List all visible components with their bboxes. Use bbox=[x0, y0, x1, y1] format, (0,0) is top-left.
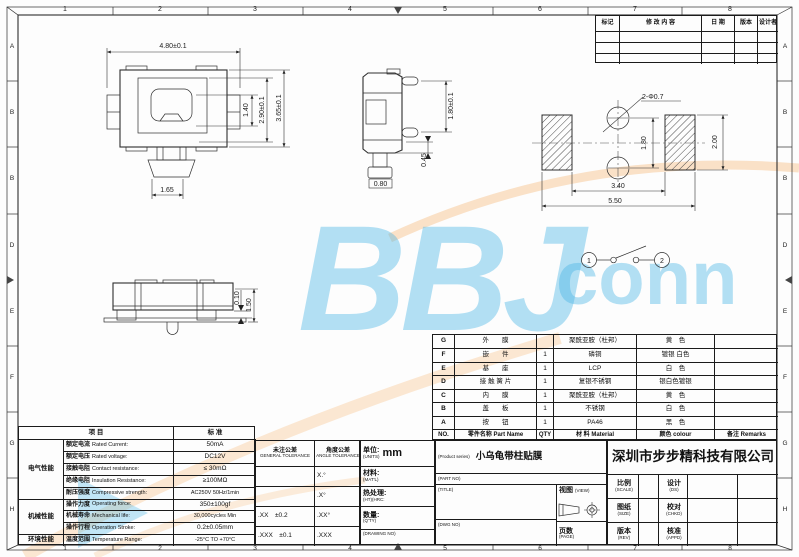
zone-label: 4 bbox=[343, 6, 357, 13]
info-material: 材料:(MAT'L) bbox=[361, 466, 436, 486]
parts-cell-qty: 1 bbox=[536, 389, 553, 402]
spec-label: 耐压强度Compressive strength: bbox=[63, 487, 173, 499]
tolerance-angle-value: .X° bbox=[314, 486, 361, 506]
spec-label: 额定电压Rated voltage: bbox=[63, 451, 173, 463]
spec-value: ≥100MΩ bbox=[173, 475, 256, 487]
parts-cell-remarks bbox=[714, 389, 778, 402]
zone-label: B bbox=[779, 175, 791, 182]
centering-mark-right bbox=[785, 276, 792, 284]
pcb-pad-left bbox=[542, 115, 572, 170]
parts-cell-remarks bbox=[714, 402, 778, 416]
product-name: 小乌龟带柱贴膜 bbox=[476, 452, 543, 462]
revision-cell bbox=[757, 42, 778, 53]
revision-cell bbox=[701, 42, 734, 53]
spec-group-electrical: 电气性能 bbox=[19, 439, 63, 499]
zone-label: H bbox=[6, 506, 18, 513]
title-block-left: (Product series) 小乌龟带柱贴膜 (PART NO) (TITL… bbox=[435, 440, 607, 545]
spec-table: 项 目 标 准 电气性能 机械性能 环境性能 额定电流Rated Current… bbox=[18, 426, 255, 545]
zone-label: B bbox=[779, 109, 791, 116]
spec-label: 机械寿命Mechanical life: bbox=[63, 510, 173, 522]
dim-front-gap: 0.10 bbox=[234, 291, 241, 305]
parts-cell-colour: 银白色镀银 bbox=[636, 375, 714, 389]
title-block-right: 深圳市步步精科技有限公司 比例(SCALE) 设计(DS) 图纸(SIZE) 校… bbox=[607, 440, 777, 545]
company-name: 深圳市步步精科技有限公司 bbox=[608, 441, 778, 474]
parts-cell-material: 不锈钢 bbox=[553, 402, 636, 416]
spec-value: 50mA bbox=[173, 439, 256, 451]
circuit-terminal-1: 1 bbox=[587, 258, 591, 265]
dim-top-inner-height: 2.90±0.1 bbox=[259, 96, 266, 123]
info-units: 单位:(UNITS) mm bbox=[361, 441, 436, 466]
spec-label: 接触电阻Contact resistance: bbox=[63, 463, 173, 475]
spec-value: 0.2±0.05mm bbox=[173, 522, 256, 534]
parts-cell-remarks bbox=[714, 375, 778, 389]
info-block: 单位:(UNITS) mm 材料:(MAT'L) 热处理:(HT)(HRC: 数… bbox=[360, 440, 435, 545]
spec-group-environmental: 环境性能 bbox=[19, 534, 63, 546]
zone-label: B bbox=[6, 109, 18, 116]
parts-cell-material: 聚酰亚胺（杜邦） bbox=[553, 389, 636, 402]
zone-label: 8 bbox=[724, 545, 736, 552]
zone-label: D bbox=[779, 242, 791, 249]
dim-side-foot-width: 0.80 bbox=[374, 181, 388, 188]
info-heat-treatment: 热处理:(HT)(HRC: bbox=[361, 486, 436, 506]
parts-cell-remarks bbox=[714, 416, 778, 429]
revision-header-content: 修 改 内 容 bbox=[619, 16, 701, 31]
revision-cell bbox=[701, 53, 734, 64]
rev-label: 版本(REV) bbox=[608, 522, 638, 546]
dim-top-width: 4.80±0.1 bbox=[159, 43, 186, 50]
zone-label: B bbox=[6, 175, 18, 182]
spec-value: -25°C TO +70°C bbox=[173, 534, 256, 546]
centering-mark-left bbox=[7, 276, 14, 284]
parts-cell-name: 基 座 bbox=[454, 362, 536, 375]
spec-header-standard: 标 准 bbox=[173, 427, 256, 439]
dim-pcb-span-inner: 3.40 bbox=[611, 183, 625, 190]
parts-cell-material: 聚酰亚胺（杜邦） bbox=[553, 335, 636, 348]
check-value bbox=[687, 498, 737, 522]
parts-table: G 外 膜 聚酰亚胺（杜邦） 黄 色 F 嵌 件 1 磷铜 镀银 白色 E 基 … bbox=[432, 334, 777, 440]
zone-label: 3 bbox=[248, 6, 262, 13]
parts-cell-qty: 1 bbox=[536, 375, 553, 389]
spec-value: DC12V bbox=[173, 451, 256, 463]
parts-cell-no: G bbox=[433, 335, 454, 348]
tolerance-general-value: .XXX ±0.1 bbox=[256, 526, 314, 546]
parts-cell-name: 外 膜 bbox=[454, 335, 536, 348]
parts-cell-material: PA46 bbox=[553, 416, 636, 429]
revision-table: 标记 修 改 内 容 日 期 版本 设计者 bbox=[595, 15, 777, 63]
zone-label: F bbox=[779, 374, 791, 381]
zone-label: 7 bbox=[629, 545, 641, 552]
dim-side-pin-offset: 0.45 bbox=[421, 153, 428, 167]
rev-value bbox=[638, 522, 658, 546]
spec-header-item: 项 目 bbox=[19, 427, 173, 439]
scale-value bbox=[638, 474, 658, 498]
zone-label: A bbox=[6, 43, 18, 50]
revision-cell bbox=[757, 53, 778, 64]
zone-label: F bbox=[6, 374, 18, 381]
spec-group-mechanical: 机械性能 bbox=[19, 499, 63, 534]
product-series-cell: (Product series) 小乌龟带柱贴膜 bbox=[436, 441, 608, 473]
check-label: 校对(CHKD) bbox=[658, 498, 687, 522]
parts-cell-no: F bbox=[433, 348, 454, 362]
zone-label: H bbox=[779, 506, 791, 513]
parts-cell-colour: 镀银 白色 bbox=[636, 348, 714, 362]
parts-cell-colour: 白 色 bbox=[636, 362, 714, 375]
dim-front-height: 1.50 bbox=[246, 298, 253, 312]
parts-cell-remarks bbox=[714, 362, 778, 375]
spec-label: 温度范围Temperature Range: bbox=[63, 534, 173, 546]
parts-cell-material: 磷铜 bbox=[553, 348, 636, 362]
parts-cell-no: C bbox=[433, 389, 454, 402]
revision-cell bbox=[701, 31, 734, 42]
zone-label: G bbox=[6, 440, 18, 447]
dim-pcb-pitch: 1.80 bbox=[641, 136, 648, 150]
drawing-sheet: BBJ conn bbox=[0, 0, 799, 557]
front-view-drawing: 0.10 1.50 bbox=[104, 280, 258, 334]
circuit-diagram: 1 2 bbox=[582, 246, 670, 268]
parts-cell-colour: 黄 色 bbox=[636, 335, 714, 348]
zone-label: 2 bbox=[154, 545, 166, 552]
title-block-cell bbox=[737, 522, 778, 546]
dim-top-total-height: 3.65±0.1 bbox=[276, 94, 283, 121]
zone-label: G bbox=[779, 440, 791, 447]
revision-header-version: 版本 bbox=[734, 16, 757, 31]
revision-cell bbox=[619, 42, 701, 53]
spec-value: ≤ 30mΩ bbox=[173, 463, 256, 475]
tolerance-angle-value: X.° bbox=[314, 466, 361, 486]
title-cell: (TITLE) bbox=[436, 484, 556, 519]
zone-label: 4 bbox=[344, 545, 356, 552]
revision-header-mark: 标记 bbox=[596, 16, 619, 31]
zone-label: 3 bbox=[249, 545, 261, 552]
revision-cell bbox=[596, 42, 619, 53]
tolerance-general-value bbox=[256, 466, 314, 486]
design-value bbox=[687, 474, 737, 498]
spec-value: 30,000cycles Min bbox=[173, 510, 256, 522]
parts-cell-remarks bbox=[714, 335, 778, 348]
side-view-drawing: 1.80±0.1 0.45 0.80 bbox=[363, 69, 455, 188]
parts-cell-material: 复银不锈钢 bbox=[553, 375, 636, 389]
parts-cell-colour: 黑 色 bbox=[636, 416, 714, 429]
zone-label: 2 bbox=[153, 6, 167, 13]
tolerance-header-angle: 角度公差ANGLE TOLERANCE bbox=[314, 441, 361, 466]
dim-top-button-height: 1.40 bbox=[243, 103, 250, 117]
zone-label: D bbox=[6, 242, 18, 249]
revision-cell bbox=[619, 31, 701, 42]
part-no-cell: (PART NO) bbox=[436, 473, 608, 484]
revision-cell bbox=[596, 31, 619, 42]
zone-label: 5 bbox=[439, 545, 451, 552]
parts-cell-qty: 1 bbox=[536, 362, 553, 375]
zone-label: E bbox=[779, 308, 791, 315]
revision-cell bbox=[757, 31, 778, 42]
revision-header-designer: 设计者 bbox=[757, 16, 778, 31]
dwg-no-cell: (DWG NO) bbox=[436, 519, 556, 546]
spec-label: 绝缘电阻Insulation Resistance: bbox=[63, 475, 173, 487]
parts-cell-no: E bbox=[433, 362, 454, 375]
spec-label: 额定电流Rated Current: bbox=[63, 439, 173, 451]
zone-label: E bbox=[6, 308, 18, 315]
revision-cell bbox=[734, 31, 757, 42]
scale-label: 比例(SCALE) bbox=[608, 474, 638, 498]
parts-cell-colour: 白 色 bbox=[636, 402, 714, 416]
dim-top-stem-width: 1.65 bbox=[160, 187, 174, 194]
tolerance-angle-value: .XX° bbox=[314, 506, 361, 526]
dim-pcb-span-outer: 5.50 bbox=[608, 198, 622, 205]
tolerance-table: 未注公差GENERAL TOLERANCE 角度公差ANGLE TOLERANC… bbox=[255, 440, 360, 545]
appd-label: 核准(APPD) bbox=[658, 522, 687, 546]
revision-cell bbox=[734, 53, 757, 64]
parts-cell-name: 接 触 簧 片 bbox=[454, 375, 536, 389]
parts-cell-qty: 1 bbox=[536, 402, 553, 416]
appd-value bbox=[687, 522, 737, 546]
spec-value: 350±100gf bbox=[173, 499, 256, 510]
parts-cell-name: 内 膜 bbox=[454, 389, 536, 402]
info-quantity: 数量:(Q'TY) bbox=[361, 506, 436, 529]
centering-mark-top bbox=[394, 7, 402, 14]
title-block-cell bbox=[737, 474, 778, 498]
spec-label: 操作力度Operating force: bbox=[63, 499, 173, 510]
parts-cell-no: B bbox=[433, 402, 454, 416]
spec-label: 操作行程Operation Stroke: bbox=[63, 522, 173, 534]
pcb-pad-right bbox=[665, 115, 695, 170]
title-block-cell bbox=[737, 498, 778, 522]
zone-label: 8 bbox=[723, 6, 737, 13]
revision-cell bbox=[619, 53, 701, 64]
parts-cell-qty bbox=[536, 335, 553, 348]
parts-cell-name: 按 钮 bbox=[454, 416, 536, 429]
spec-value: AC250V 50Hz/1min bbox=[173, 487, 256, 499]
zone-label: 6 bbox=[533, 6, 547, 13]
view-cell: 视图(VIEW) bbox=[556, 484, 608, 521]
parts-cell-no: D bbox=[433, 375, 454, 389]
zone-label: 1 bbox=[59, 545, 71, 552]
parts-cell-name: 盖 板 bbox=[454, 402, 536, 416]
revision-cell bbox=[596, 53, 619, 64]
top-view-drawing: 4.80±0.1 1.40 2.90±0.1 3.65±0.1 1.65 bbox=[107, 43, 290, 199]
parts-cell-name: 嵌 件 bbox=[454, 348, 536, 362]
dim-pcb-callout: 2-Φ0.7 bbox=[642, 94, 664, 101]
info-drawing-no: (DRAWING NO) bbox=[361, 529, 436, 546]
zone-label: A bbox=[779, 43, 791, 50]
units-value: mm bbox=[383, 448, 403, 460]
size-label: 图纸(SIZE) bbox=[608, 498, 638, 522]
parts-cell-material: LCP bbox=[553, 362, 636, 375]
page-cell: 页数(PAGE) bbox=[556, 521, 608, 546]
tolerance-header-general: 未注公差GENERAL TOLERANCE bbox=[256, 441, 314, 466]
zone-label: 6 bbox=[534, 545, 546, 552]
parts-cell-remarks bbox=[714, 348, 778, 362]
size-value bbox=[638, 498, 658, 522]
circuit-terminal-2: 2 bbox=[660, 258, 664, 265]
parts-cell-qty: 1 bbox=[536, 348, 553, 362]
parts-cell-colour: 黄 色 bbox=[636, 389, 714, 402]
zone-label: 7 bbox=[628, 6, 642, 13]
parts-cell-no: A bbox=[433, 416, 454, 429]
tolerance-general-value: .XX ±0.2 bbox=[256, 506, 314, 526]
zone-label: 1 bbox=[58, 6, 72, 13]
design-label: 设计(DS) bbox=[658, 474, 687, 498]
revision-header-date: 日 期 bbox=[701, 16, 734, 31]
revision-cell bbox=[734, 42, 757, 53]
tolerance-angle-value: .XXX bbox=[314, 526, 361, 546]
tolerance-general-value bbox=[256, 486, 314, 506]
dim-side-pin-pitch: 1.80±0.1 bbox=[448, 92, 455, 119]
zone-label: 5 bbox=[438, 6, 452, 13]
dim-pcb-pad-height: 2.00 bbox=[712, 135, 719, 149]
parts-cell-qty: 1 bbox=[536, 416, 553, 429]
pcb-layout-drawing: 2-Φ0.7 1.80 2.00 3.40 5.50 bbox=[532, 94, 728, 211]
